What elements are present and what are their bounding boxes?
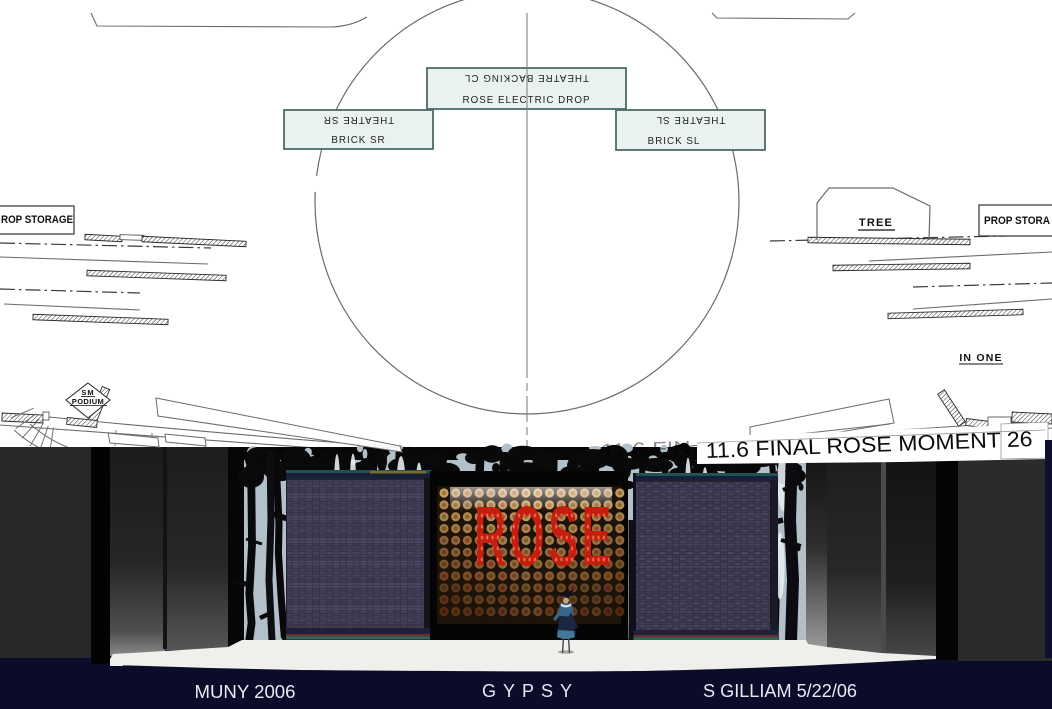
svg-text:THEATRE SR: THEATRE SR	[323, 114, 394, 125]
svg-text:BRICK SL: BRICK SL	[648, 136, 701, 147]
svg-text:ROP STORAGE: ROP STORAGE	[1, 214, 73, 226]
svg-text:BRICK SR: BRICK SR	[331, 135, 385, 146]
svg-text:TREE: TREE	[859, 217, 893, 229]
svg-text:S GILLIAM 5/22/06: S GILLIAM 5/22/06	[703, 681, 857, 701]
svg-text:PODIUM: PODIUM	[72, 397, 104, 406]
svg-text:PROP STORA: PROP STORA	[984, 215, 1050, 227]
svg-text:MUNY 2006: MUNY 2006	[195, 682, 296, 702]
svg-text:IN ONE: IN ONE	[959, 352, 1002, 364]
svg-text:THEATRE SL: THEATRE SL	[656, 114, 726, 125]
svg-text:11.6 FIN: 11.6 FIN	[600, 438, 691, 462]
svg-text:ROSE: ROSE	[474, 490, 615, 584]
svg-text:SM: SM	[81, 388, 94, 397]
